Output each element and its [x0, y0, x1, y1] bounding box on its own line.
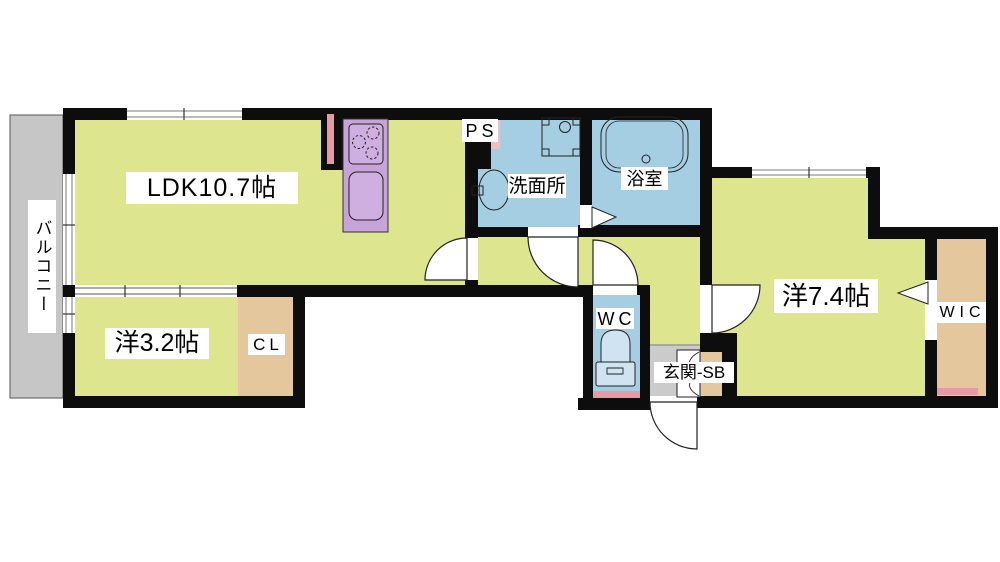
window-icon	[63, 297, 75, 333]
door-opening	[593, 285, 637, 295]
wc-accent-strip	[593, 391, 640, 398]
pipe-space-label: PS	[462, 119, 498, 142]
wall	[293, 285, 305, 408]
wall	[697, 396, 998, 408]
closet-label: CL	[248, 334, 285, 355]
wic-accent-strip	[937, 388, 978, 395]
door-swing-icon	[650, 402, 697, 449]
wall	[578, 225, 712, 237]
bathroom-label: 浴室	[621, 167, 668, 190]
ldk-label: LDK10.7帖	[126, 172, 298, 204]
door-opening	[528, 227, 578, 237]
door-opening	[580, 205, 592, 228]
balcony-label: バルコニー	[28, 200, 56, 333]
wall	[583, 285, 593, 410]
wc-label: WC	[596, 308, 634, 329]
sliding-partition-icon	[75, 285, 237, 297]
washroom-label: 洗面所	[508, 174, 566, 198]
wall	[578, 398, 650, 410]
window-icon	[752, 167, 866, 178]
western-large-label: 洋7.4帖	[774, 279, 878, 313]
floorplan: バルコニー LDK10.7帖 洋3.2帖 CL PS 洗面所 浴室 WC 玄関-…	[0, 0, 1000, 562]
kitchen-sink-icon	[349, 172, 383, 220]
western-small-label: 洋3.2帖	[105, 328, 209, 359]
wall	[63, 396, 303, 408]
wall	[303, 285, 593, 297]
refrigerator-space-strip	[327, 114, 334, 164]
wall	[986, 227, 998, 408]
entrance-label: 玄関-SB	[654, 362, 734, 383]
wall	[868, 227, 998, 239]
wall	[640, 285, 650, 410]
window-icon	[63, 174, 75, 285]
toilet-icon	[596, 330, 635, 386]
door-opening	[700, 285, 712, 333]
window-icon	[127, 108, 242, 120]
wic-label: WIC	[935, 302, 986, 323]
